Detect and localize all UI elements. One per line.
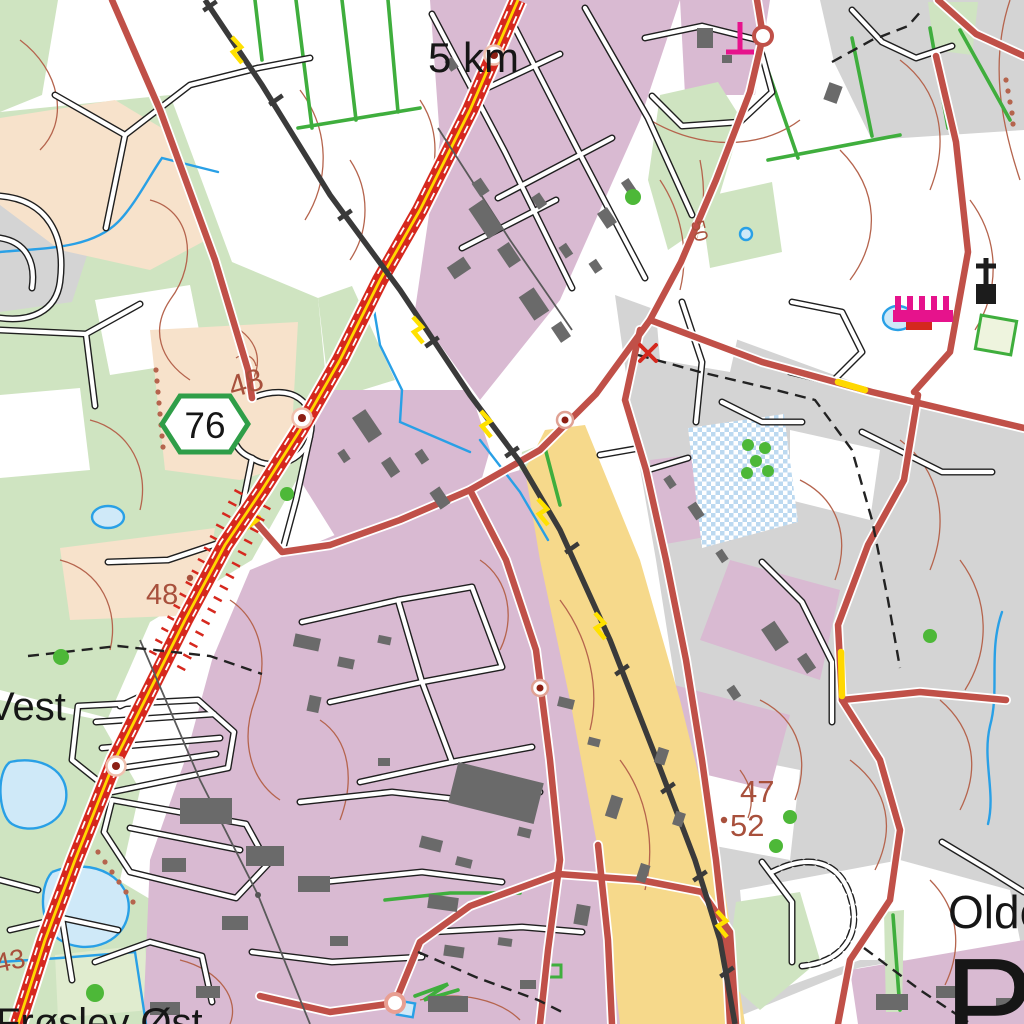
track-point (255, 892, 261, 898)
elevation-label: 52 (730, 808, 764, 843)
place-label-vest: Vest (0, 685, 66, 729)
pond (0, 760, 66, 828)
spot-height-dot (721, 817, 727, 823)
km-marker-icon (532, 680, 548, 696)
km-marker-icon (293, 409, 312, 428)
cemetery-area (975, 315, 1016, 355)
elevation-label: 48 (146, 579, 178, 611)
scale-label: 5 km (428, 34, 519, 81)
km-marker-icon (557, 412, 573, 428)
km-marker-icon (107, 757, 126, 776)
roundabout-icon (754, 27, 772, 45)
elevation-label: 47 (740, 774, 774, 809)
exit-shield-number: 76 (184, 405, 225, 446)
roundabout-icon (386, 994, 404, 1012)
pond (92, 506, 124, 528)
place-label-large: PA (944, 930, 1024, 1024)
spot-height-dot (187, 575, 193, 581)
map-canvas[interactable]: 5 km 76 48 48 50 47 52 43 Vest Frøslev Ø… (0, 0, 1024, 1024)
exit-shield: 76 (162, 396, 248, 452)
map-stage: 5 km 76 48 48 50 47 52 43 Vest Frøslev Ø… (0, 0, 1024, 1024)
place-label-froslev-ost: Frøslev Øst (0, 1001, 203, 1024)
pond (740, 228, 752, 240)
